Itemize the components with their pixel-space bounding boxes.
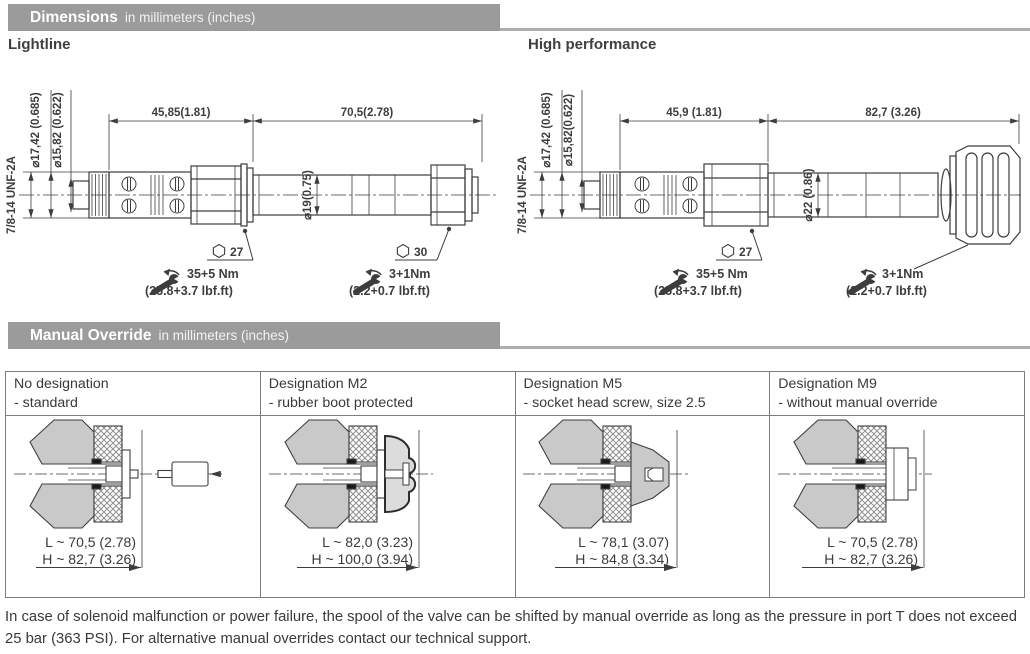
dimensions-title: Dimensions [30, 9, 118, 27]
hexagon-icon [722, 245, 733, 258]
lightline-heading: Lightline [8, 36, 71, 53]
datasheet-page: { "colors": { "section_bar": "#9b9b9b", … [0, 0, 1030, 654]
manual-override-title: Manual Override [30, 327, 151, 345]
hexagon-icon [213, 245, 224, 258]
header-cell-m5: Designation M5 - socket head screw, size… [515, 372, 770, 416]
torque-front-nm: 35+5 Nm [696, 267, 748, 281]
hex-callout-rear: 30 [395, 227, 451, 260]
dia-tube-label: ⌀19(0.75) [302, 170, 314, 220]
dim-l-label: L ~ 70,5 (2.78) [45, 534, 136, 550]
dimensions-subtitle: in millimeters (inches) [125, 10, 256, 25]
column-title: No designation [14, 375, 252, 394]
dia-outer-label: ⌀17,42 (0.685) [541, 92, 553, 168]
torque-rear-lbf: (2.2+0.7 lbf.ft) [846, 284, 927, 298]
hex-callout-front: 27 [716, 229, 762, 260]
dimensions-bar-rule [500, 28, 1030, 31]
hex-rear-size: 30 [414, 245, 428, 259]
high-performance-drawing: 45,9 (1.81) 82,7 (3.26) 7/8-14 UNF-2A ⌀1… [516, 78, 1028, 318]
length-rear-label: 82,7 (3.26) [865, 107, 921, 119]
override-drawing-m5: L ~ 78,1 (3.07) H ~ 84,8 (3.34) [517, 416, 767, 596]
hex-front-size: 27 [739, 245, 753, 259]
body-cell-m9: L ~ 70,5 (2.78) H ~ 82,7 (3.26) [770, 416, 1025, 598]
torque-rear-lbf: (2.2+0.7 lbf.ft) [349, 284, 430, 298]
manual-override-section-header: Manual Override in millimeters (inches) [0, 322, 1030, 349]
manual-override-bar: Manual Override in millimeters (inches) [8, 322, 500, 349]
dim-l-label: L ~ 70,5 (2.78) [827, 534, 918, 550]
manual-override-subtitle: in millimeters (inches) [158, 328, 289, 343]
header-cell-m9: Designation M9 - without manual override [770, 372, 1025, 416]
hex-front-size: 27 [230, 245, 244, 259]
dim-h-label: H ~ 82,7 (3.26) [42, 551, 136, 567]
torque-front-lbf: (25.8+3.7 lbf.ft) [654, 284, 742, 298]
hex-callout-front: 27 [207, 229, 253, 260]
torque-rear-nm: 3+1Nm [882, 267, 923, 281]
column-title: Designation M2 [269, 375, 507, 394]
dimensions-bar: Dimensions in millimeters (inches) [8, 4, 500, 31]
hexagon-icon [397, 245, 408, 258]
column-subtitle: - socket head screw, size 2.5 [524, 394, 762, 413]
override-drawing-m9: L ~ 70,5 (2.78) H ~ 82,7 (3.26) [772, 416, 1022, 596]
dia-inner-label: ⌀15,82 (0.622) [52, 92, 64, 168]
override-pin-tool [158, 462, 222, 486]
manual-override-bar-rule [500, 346, 1030, 349]
column-subtitle: - standard [14, 394, 252, 413]
torque-rear-nm: 3+1Nm [389, 267, 430, 281]
dia-tube-label: ⌀22 (0.86) [803, 168, 815, 221]
table-body-row: L ~ 70,5 (2.78) H ~ 82,7 (3.26) [6, 416, 1025, 598]
dia-inner-label: ⌀15,82(0.622) [563, 94, 575, 166]
dimensions-section-header: Dimensions in millimeters (inches) [0, 4, 1030, 31]
torque-front-lbf: (25.8+3.7 lbf.ft) [145, 284, 233, 298]
torque-front-nm: 35+5 Nm [187, 267, 239, 281]
manual-override-note: In case of solenoid malfunction or power… [5, 606, 1027, 650]
length-rear-label: 70,5(2.78) [341, 107, 394, 119]
knob-leader-line [914, 245, 968, 269]
column-subtitle: - without manual override [778, 394, 1016, 413]
dim-h-label: H ~ 100,0 (3.94) [311, 551, 413, 567]
rubber-boot [385, 436, 415, 512]
high-performance-heading: High performance [528, 36, 656, 53]
socket-screw-cap [631, 442, 669, 506]
closed-end-cap [886, 448, 916, 500]
header-cell-m2: Designation M2 - rubber boot protected [260, 372, 515, 416]
length-front-label: 45,85(1.81) [152, 107, 211, 119]
manual-override-table: No designation - standard Designation M2… [5, 371, 1025, 598]
dim-h-label: H ~ 82,7 (3.26) [824, 551, 918, 567]
dim-l-label: L ~ 78,1 (3.07) [578, 534, 669, 550]
dim-h-label: H ~ 84,8 (3.34) [576, 551, 670, 567]
body-cell-m5: L ~ 78,1 (3.07) H ~ 84,8 (3.34) [515, 416, 770, 598]
body-cell-standard: L ~ 70,5 (2.78) H ~ 82,7 (3.26) [6, 416, 261, 598]
thread-label: 7/8-14 UNF-2A [6, 156, 18, 234]
dia-outer-label: ⌀17,42 (0.685) [30, 92, 42, 168]
column-title: Designation M5 [524, 375, 762, 394]
lightline-drawing: 45,85(1.81) 70,5(2.78) 7/8-14 UNF-2A ⌀17… [5, 78, 510, 318]
header-cell-standard: No designation - standard [6, 372, 261, 416]
column-title: Designation M9 [778, 375, 1016, 394]
override-drawing-m2: L ~ 82,0 (3.23) H ~ 100,0 (3.94) [263, 416, 513, 596]
column-subtitle: - rubber boot protected [269, 394, 507, 413]
thread-label: 7/8-14 UNF-2A [517, 156, 529, 234]
length-front-label: 45,9 (1.81) [666, 107, 722, 119]
table-header-row: No designation - standard Designation M2… [6, 372, 1025, 416]
dim-l-label: L ~ 82,0 (3.23) [322, 534, 413, 550]
override-drawing-standard: L ~ 70,5 (2.78) H ~ 82,7 (3.26) [8, 416, 258, 596]
body-cell-m2: L ~ 82,0 (3.23) H ~ 100,0 (3.94) [260, 416, 515, 598]
